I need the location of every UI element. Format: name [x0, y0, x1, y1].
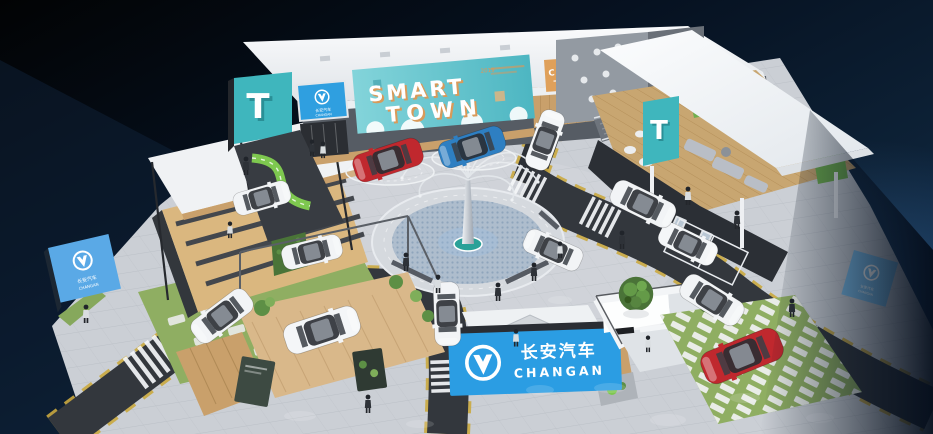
screen-letter: T: [650, 116, 668, 146]
exhibition-render: 长安汽车 CHANGAN: [0, 0, 933, 434]
right-screen: T T: [643, 96, 679, 166]
brand-name-en: CHANGAN: [514, 363, 606, 381]
car-white: [431, 281, 463, 346]
platform-display-panel: [352, 348, 387, 392]
changan-logo-sign: 长安汽车 CHANGAN: [296, 80, 349, 122]
screen-letter: T: [246, 87, 270, 127]
brand-name-cn: 长安汽车: [520, 340, 597, 364]
tree: [619, 277, 654, 312]
brand-banner: 长安汽车 CHANGAN: [446, 321, 624, 396]
tree-planter: [623, 310, 649, 319]
